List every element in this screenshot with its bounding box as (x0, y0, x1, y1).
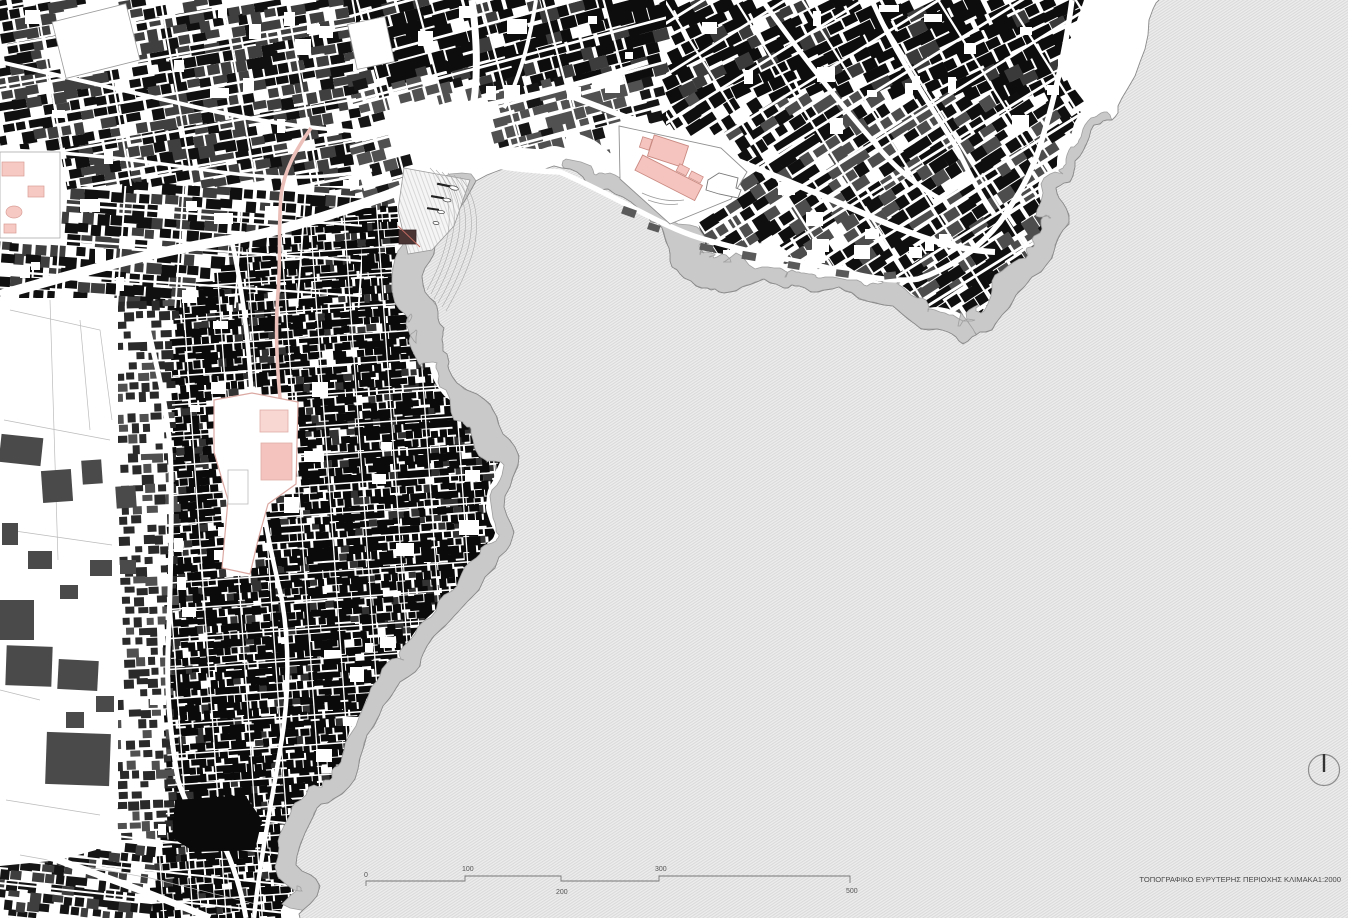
svg-text:ΤΟΠΟΓΡΑΦΙΚΟ ΕΥΡΥΤΕΡΗΣ ΠΕΡΙΟΧΗΣ: ΤΟΠΟΓΡΑΦΙΚΟ ΕΥΡΥΤΕΡΗΣ ΠΕΡΙΟΧΗΣ ΚΛΙΜΑΚΑ1:… (1139, 875, 1341, 884)
svg-text:500: 500 (846, 888, 858, 895)
svg-text:300: 300 (655, 866, 667, 873)
svg-text:0: 0 (364, 872, 368, 879)
svg-text:100: 100 (462, 866, 474, 873)
svg-text:200: 200 (556, 889, 568, 896)
